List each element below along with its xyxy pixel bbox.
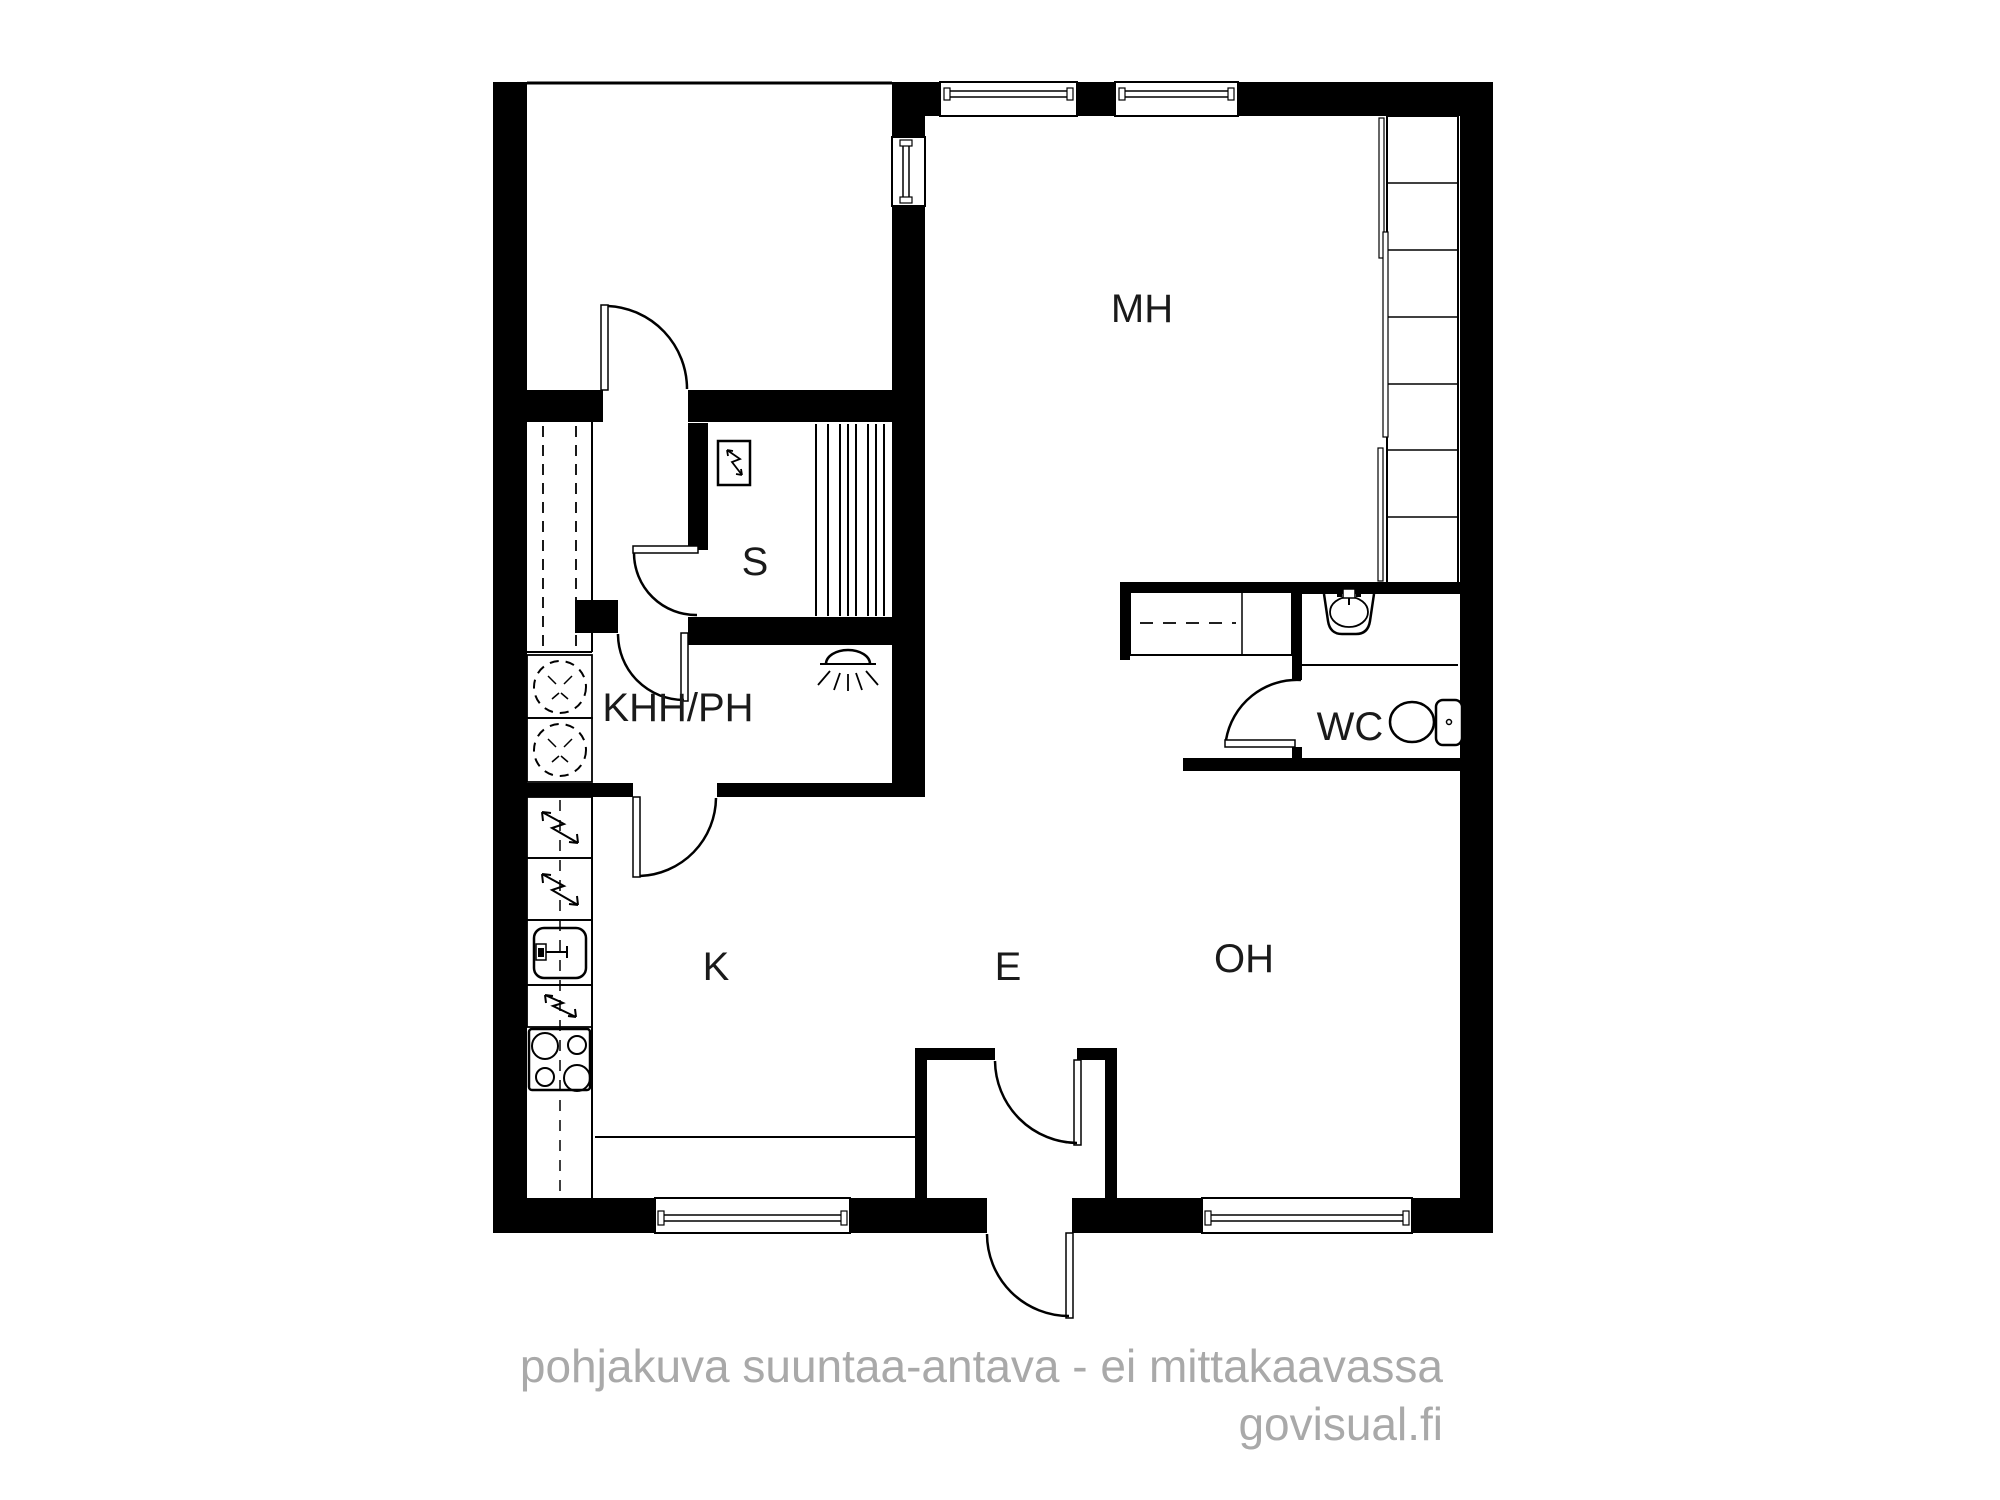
wall-khh-east	[892, 422, 925, 797]
room-label-e: E	[995, 945, 1022, 989]
wall-vestibule-top-2	[1077, 1048, 1117, 1060]
floor-plan-page: MH S KHH/PH WC K E OH pohjakuva suuntaa-…	[0, 0, 2000, 1500]
shower-icon	[818, 650, 878, 691]
toilet-icon	[1390, 700, 1462, 745]
room-label-wc: WC	[1317, 705, 1384, 749]
door-storage-room	[601, 305, 687, 390]
wall-divider-lower	[892, 206, 925, 422]
window-kitchen	[655, 1198, 850, 1233]
footer: pohjakuva suuntaa-antava - ei mittakaava…	[520, 1340, 1444, 1450]
footer-disclaimer: pohjakuva suuntaa-antava - ei mittakaava…	[520, 1340, 1444, 1392]
door-wc	[1225, 680, 1301, 747]
wall-vestibule-west	[915, 1048, 927, 1198]
wall-hall-top-2	[688, 390, 925, 422]
sauna-interior	[718, 424, 884, 616]
door-khh-to-kitchen	[633, 797, 716, 877]
hall-cabinet	[1130, 592, 1292, 655]
wall-right	[1460, 82, 1493, 1233]
interior-walls	[493, 82, 1460, 1198]
door-sauna	[633, 546, 698, 615]
wall-khh-bottom-1	[527, 783, 633, 797]
wall-vestibule-east	[1105, 1048, 1117, 1198]
exterior-walls	[493, 82, 1493, 1233]
sauna-heater-icon	[718, 441, 750, 485]
footer-brand: govisual.fi	[1238, 1398, 1443, 1450]
laundry-appliances	[527, 655, 592, 782]
wall-vestibule-top-1	[915, 1048, 995, 1060]
wall-niche-post	[1120, 582, 1130, 660]
wall-khh-bottom-2	[717, 783, 925, 797]
door-vestibule-inner	[995, 1060, 1081, 1145]
wall-top-right	[1238, 82, 1460, 116]
wall-bottom-2	[850, 1198, 987, 1233]
window-living-room	[1202, 1198, 1412, 1233]
floor-plan-drawing: MH S KHH/PH WC K E OH pohjakuva suuntaa-…	[0, 0, 2000, 1500]
wall-bottom-4	[1412, 1198, 1493, 1233]
wall-hall-bottom	[1183, 758, 1460, 771]
wall-bottom-1	[493, 1198, 655, 1233]
room-label-khh: KHH/PH	[602, 686, 753, 730]
room-label-mh: MH	[1111, 287, 1173, 331]
wall-khh-top-stub	[575, 600, 618, 633]
door-entrance-exterior	[987, 1233, 1073, 1318]
wall-bottom-3	[1072, 1198, 1202, 1233]
wall-hall-top-1	[493, 390, 603, 422]
wall-left	[493, 82, 527, 1233]
wall-wc-west-1	[1292, 592, 1302, 680]
window-divider-vertical	[892, 137, 925, 206]
dryer-icon	[534, 724, 586, 776]
thin-lines	[527, 83, 1458, 1137]
mh-closet	[1378, 116, 1458, 583]
room-label-oh: OH	[1214, 937, 1274, 981]
wall-sauna-west	[688, 423, 708, 550]
kitchen-counter-run	[527, 797, 592, 1198]
window-mh-2	[1115, 82, 1238, 116]
room-label-k: K	[703, 945, 730, 989]
wall-sauna-south	[688, 617, 920, 645]
window-mh-1	[940, 82, 1077, 116]
wall-top-pier-2	[1077, 82, 1115, 116]
room-label-s: S	[742, 540, 769, 584]
wc-sink-icon	[1324, 589, 1374, 634]
wall-divider-upper	[892, 82, 925, 137]
sauna-bench-planks	[816, 424, 884, 616]
washing-machine-icon	[534, 661, 586, 713]
